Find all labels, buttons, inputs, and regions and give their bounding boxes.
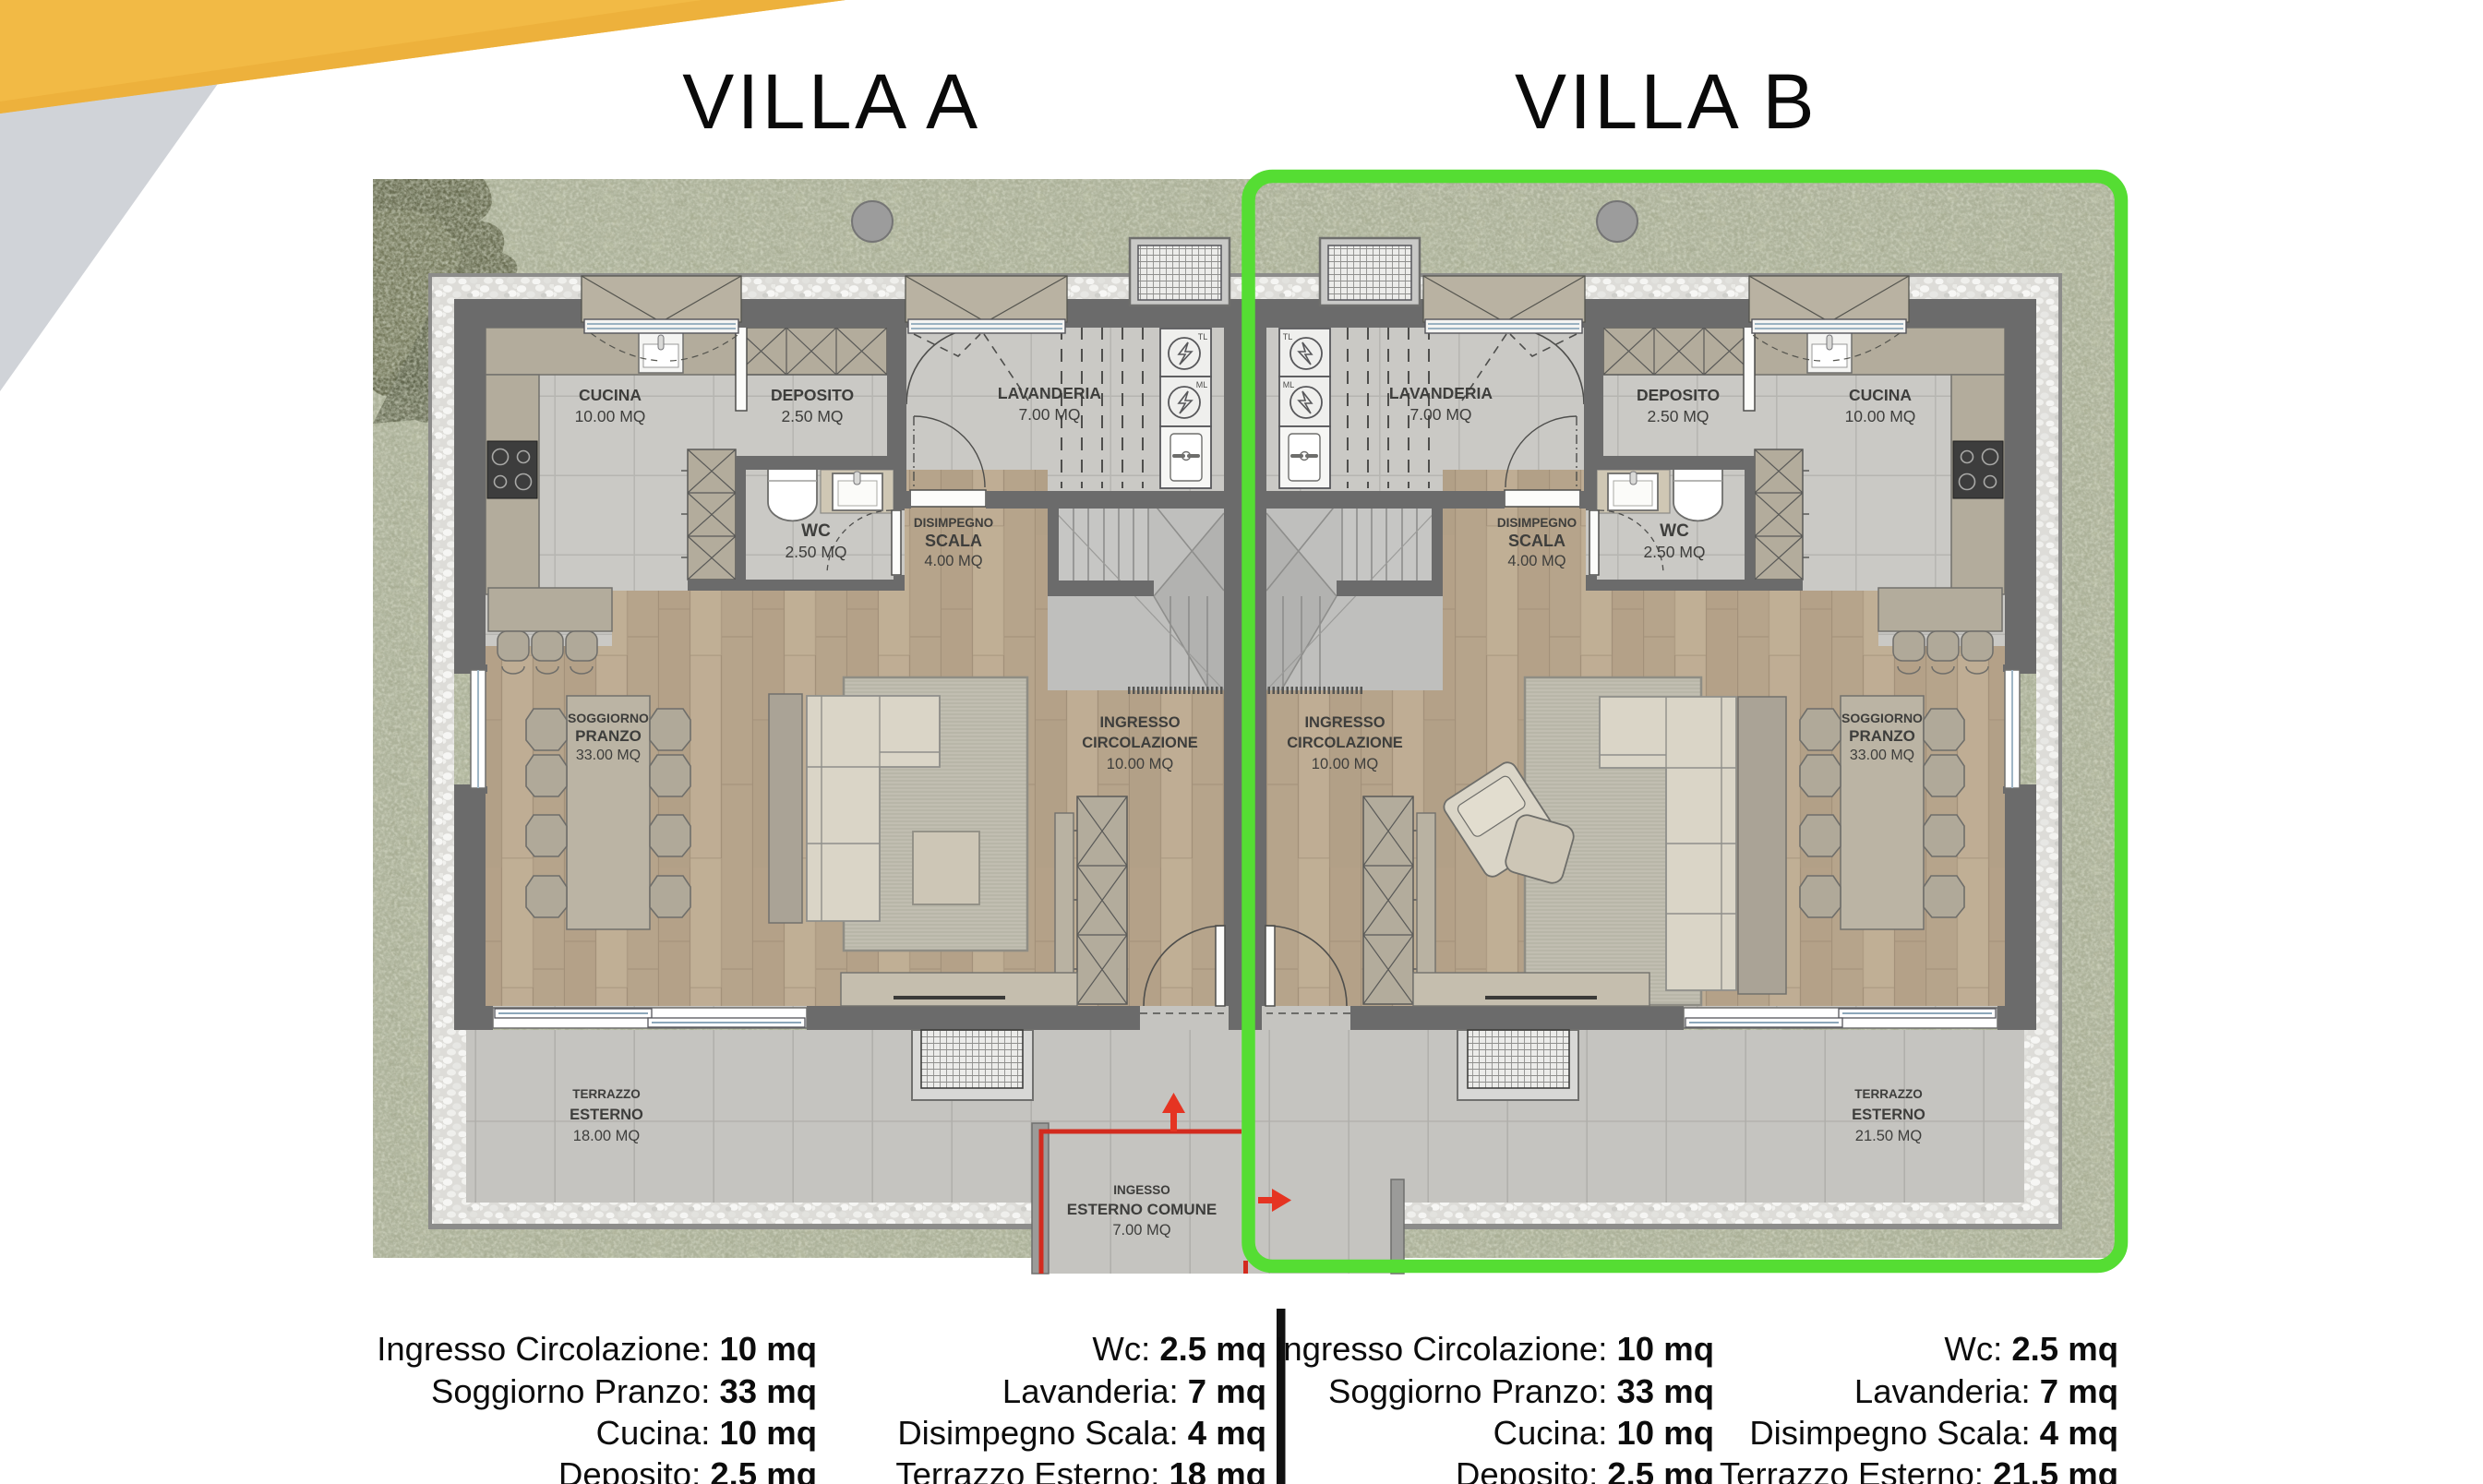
svg-text:Cucina: 10 mq: Cucina: 10 mq: [1493, 1414, 1714, 1452]
svg-text:VILLA B: VILLA B: [1515, 58, 1817, 145]
svg-text:TERRAZZO: TERRAZZO: [1854, 1087, 1923, 1101]
svg-text:ML: ML: [1196, 380, 1208, 389]
svg-text:WC: WC: [801, 521, 831, 541]
svg-text:Ingresso Circolazione: 10 mq: Ingresso Circolazione: 10 mq: [377, 1330, 817, 1368]
svg-text:4.00 MQ: 4.00 MQ: [1507, 553, 1565, 569]
svg-text:21.50 MQ: 21.50 MQ: [1855, 1128, 1923, 1144]
svg-text:SOGGIORNO: SOGGIORNO: [568, 711, 649, 725]
svg-text:33.00 MQ: 33.00 MQ: [576, 748, 641, 763]
svg-text:10.00 MQ: 10.00 MQ: [1312, 756, 1379, 772]
svg-text:Deposito: 2.5 mq: Deposito: 2.5 mq: [558, 1455, 817, 1484]
svg-text:PRANZO: PRANZO: [575, 727, 642, 745]
svg-text:Lavanderia: 7 mq: Lavanderia: 7 mq: [1002, 1372, 1266, 1410]
svg-text:INGESSO: INGESSO: [1113, 1183, 1170, 1197]
svg-text:Ingresso Circolazione: 10 mq: Ingresso Circolazione: 10 mq: [1274, 1330, 1714, 1368]
svg-text:ESTERNO: ESTERNO: [1852, 1107, 1925, 1123]
svg-text:7.00 MQ: 7.00 MQ: [1018, 405, 1080, 424]
svg-text:SOGGIORNO: SOGGIORNO: [1841, 711, 1923, 725]
svg-text:4.00 MQ: 4.00 MQ: [924, 553, 982, 569]
svg-text:CIRCOLAZIONE: CIRCOLAZIONE: [1287, 735, 1403, 751]
svg-text:VILLA A: VILLA A: [682, 58, 980, 145]
svg-text:Cucina: 10 mq: Cucina: 10 mq: [596, 1414, 817, 1452]
svg-text:INGRESSO: INGRESSO: [1099, 714, 1180, 731]
svg-text:DISIMPEGNO: DISIMPEGNO: [1497, 516, 1577, 530]
svg-text:DEPOSITO: DEPOSITO: [771, 386, 854, 404]
svg-text:TERRAZZO: TERRAZZO: [572, 1087, 641, 1101]
svg-text:Terrazzo Esterno: 18 mq: Terrazzo Esterno: 18 mq: [895, 1455, 1266, 1484]
svg-text:10.00 MQ: 10.00 MQ: [1107, 756, 1174, 772]
svg-text:SCALA: SCALA: [1508, 532, 1565, 550]
svg-text:7.00 MQ: 7.00 MQ: [1409, 405, 1471, 424]
svg-text:ESTERNO: ESTERNO: [570, 1107, 643, 1123]
svg-text:2.50 MQ: 2.50 MQ: [1647, 407, 1709, 425]
svg-text:SCALA: SCALA: [925, 532, 982, 550]
svg-text:Disimpegno Scala: 4 mq: Disimpegno Scala: 4 mq: [897, 1414, 1266, 1452]
svg-text:Wc: 2.5 mq: Wc: 2.5 mq: [1092, 1330, 1266, 1368]
svg-text:PRANZO: PRANZO: [1849, 727, 1915, 745]
svg-text:CUCINA: CUCINA: [1849, 386, 1912, 404]
svg-text:TL: TL: [1198, 332, 1208, 341]
svg-text:Soggiorno Pranzo: 33 mq: Soggiorno Pranzo: 33 mq: [431, 1372, 817, 1410]
svg-text:CUCINA: CUCINA: [579, 386, 642, 404]
svg-text:LAVANDERIA: LAVANDERIA: [1389, 384, 1493, 402]
svg-text:2.50 MQ: 2.50 MQ: [1643, 543, 1705, 561]
svg-text:ML: ML: [1283, 380, 1295, 389]
svg-text:ESTERNO COMUNE: ESTERNO COMUNE: [1067, 1201, 1217, 1218]
svg-text:Terrazzo Esterno: 21.5 mq: Terrazzo Esterno: 21.5 mq: [1720, 1455, 2118, 1484]
svg-text:Deposito: 2.5 mq: Deposito: 2.5 mq: [1456, 1455, 1714, 1484]
svg-text:CIRCOLAZIONE: CIRCOLAZIONE: [1082, 735, 1198, 751]
svg-text:7.00 MQ: 7.00 MQ: [1112, 1222, 1170, 1239]
svg-text:2.50 MQ: 2.50 MQ: [785, 543, 846, 561]
svg-text:LAVANDERIA: LAVANDERIA: [998, 384, 1101, 402]
svg-text:DEPOSITO: DEPOSITO: [1637, 386, 1720, 404]
svg-text:DISIMPEGNO: DISIMPEGNO: [914, 516, 993, 530]
svg-text:WC: WC: [1660, 521, 1689, 541]
svg-text:2.50 MQ: 2.50 MQ: [781, 407, 843, 425]
svg-text:Lavanderia: 7 mq: Lavanderia: 7 mq: [1854, 1372, 2118, 1410]
svg-text:10.00 MQ: 10.00 MQ: [1845, 407, 1916, 425]
svg-text:INGRESSO: INGRESSO: [1304, 714, 1385, 731]
svg-text:10.00 MQ: 10.00 MQ: [575, 407, 646, 425]
svg-text:18.00 MQ: 18.00 MQ: [573, 1128, 641, 1144]
svg-text:Soggiorno Pranzo: 33 mq: Soggiorno Pranzo: 33 mq: [1328, 1372, 1714, 1410]
svg-text:TL: TL: [1283, 332, 1293, 341]
svg-text:Disimpegno Scala: 4 mq: Disimpegno Scala: 4 mq: [1749, 1414, 2118, 1452]
svg-text:33.00 MQ: 33.00 MQ: [1850, 748, 1914, 763]
svg-text:Wc: 2.5 mq: Wc: 2.5 mq: [1944, 1330, 2118, 1368]
